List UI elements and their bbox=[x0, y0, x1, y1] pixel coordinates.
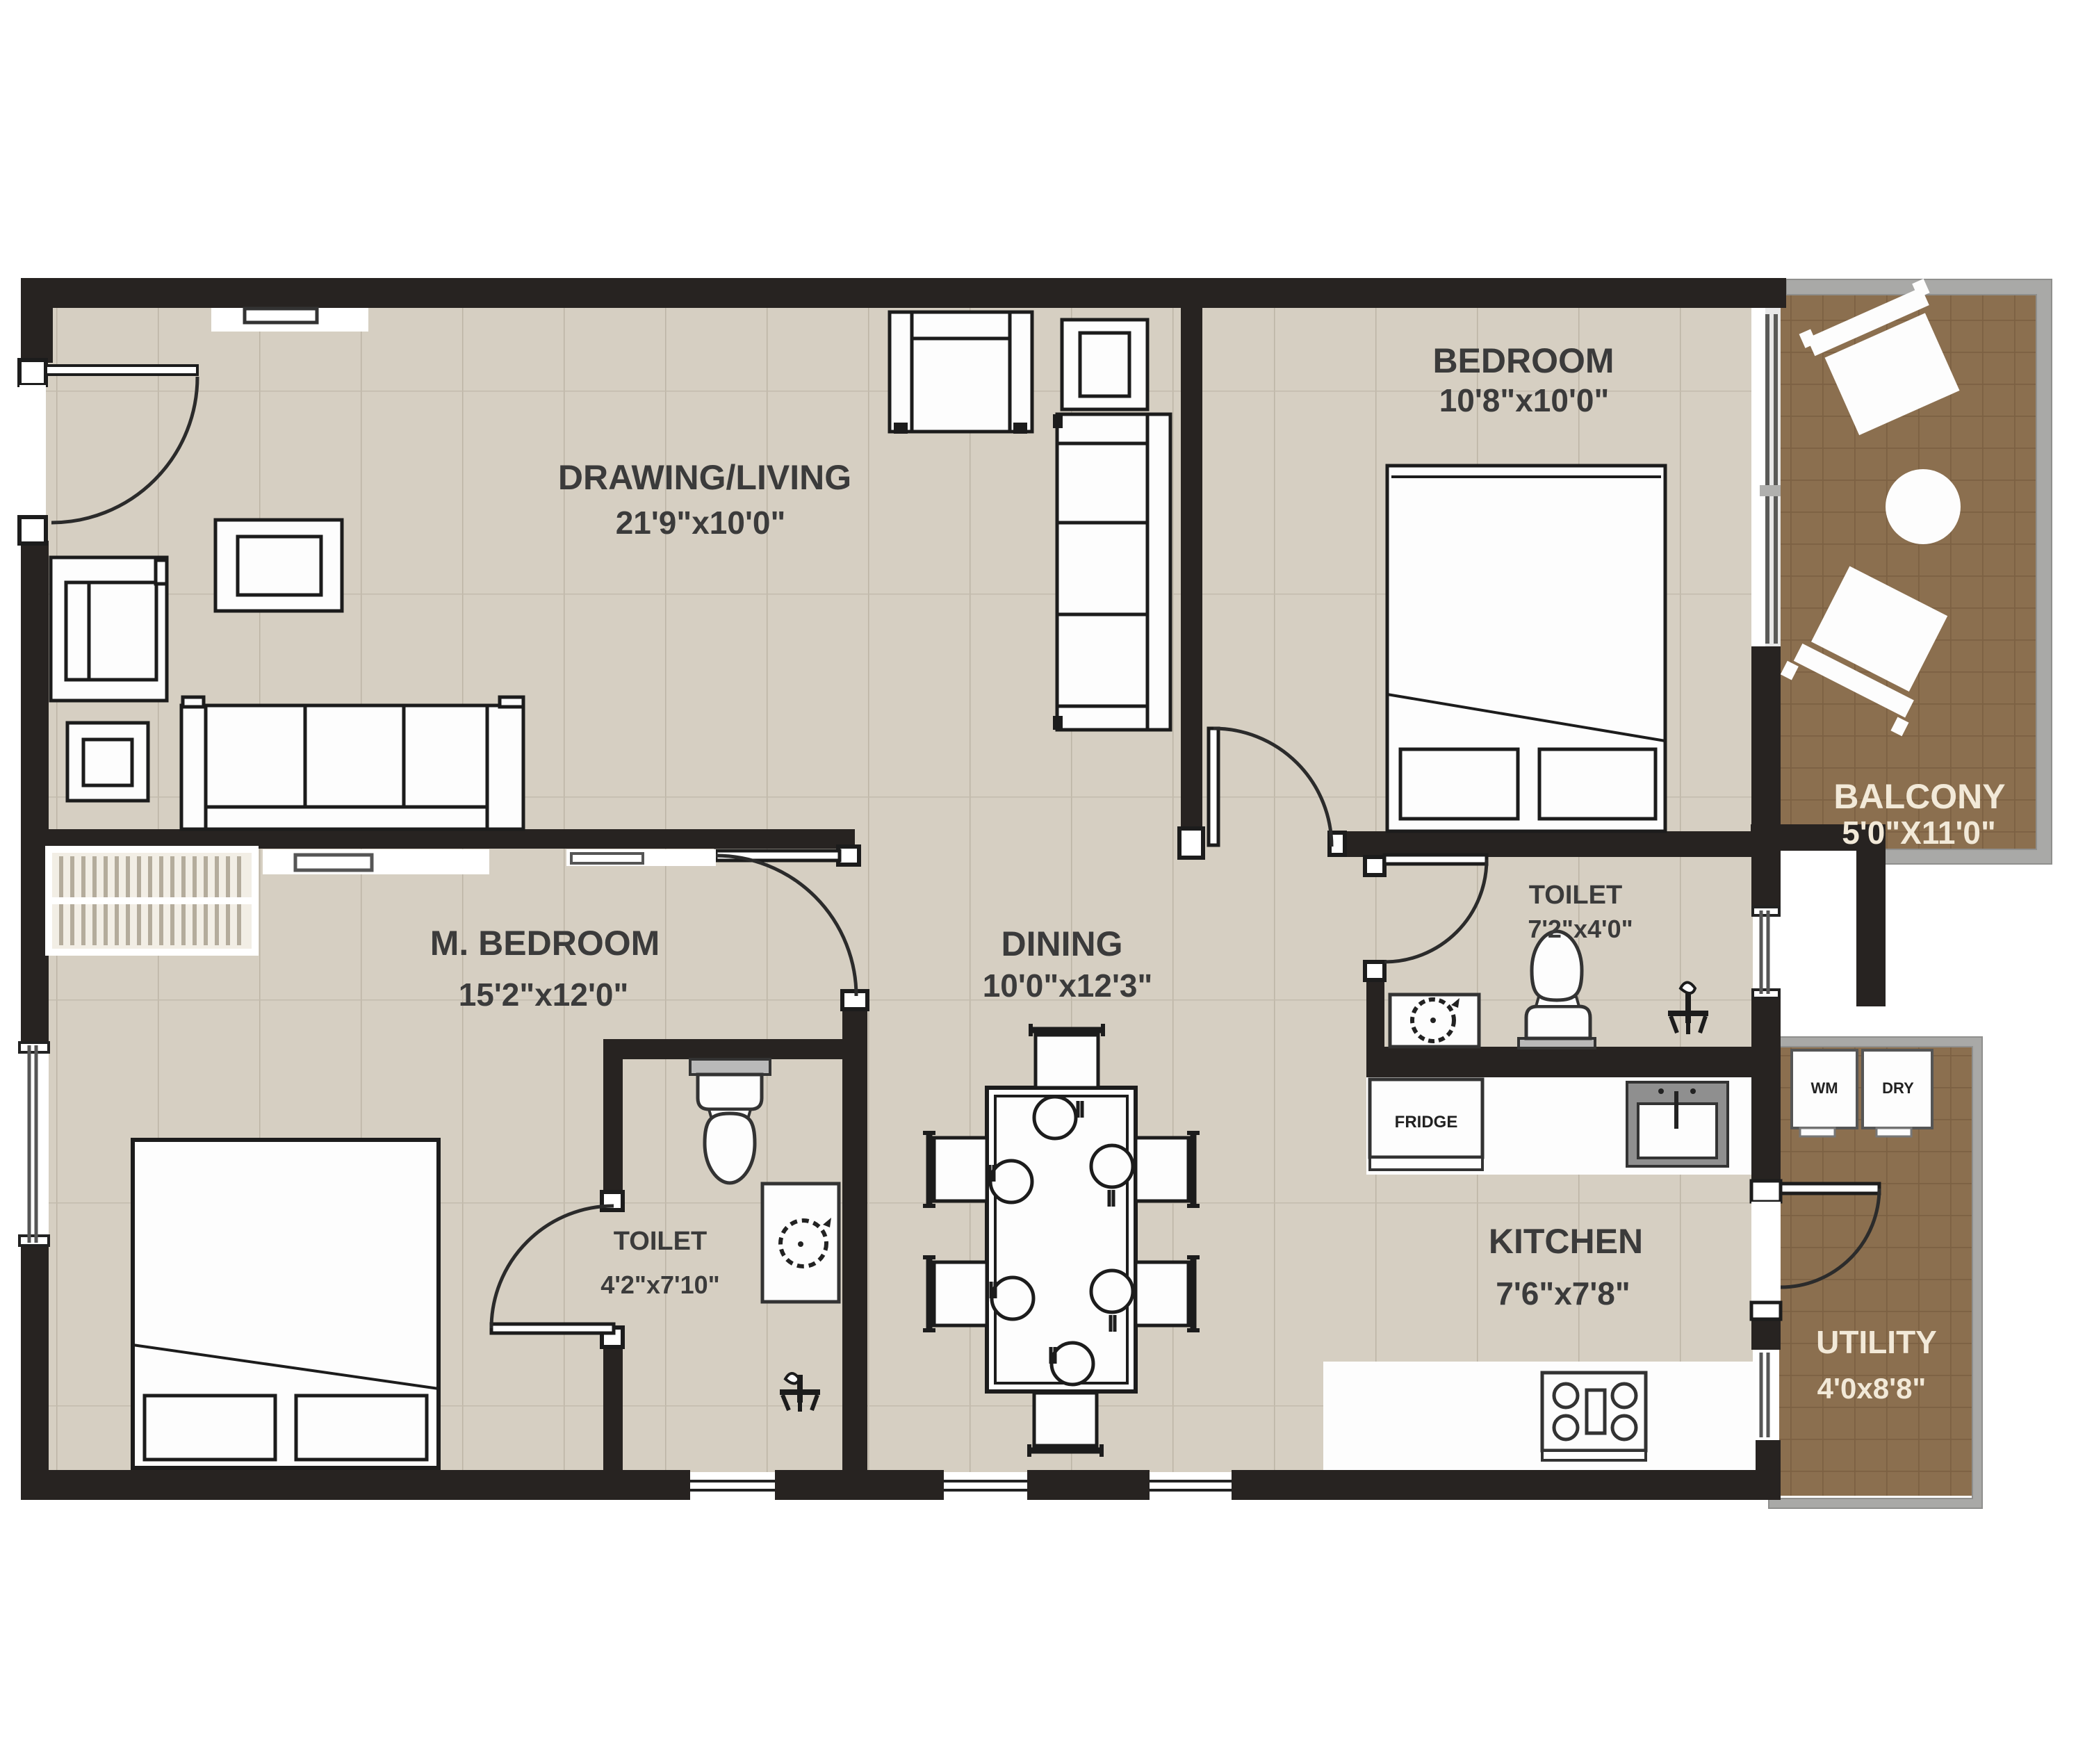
svg-text:7'6"x7'8": 7'6"x7'8" bbox=[1496, 1275, 1630, 1312]
svg-text:21'9"x10'0": 21'9"x10'0" bbox=[616, 505, 786, 541]
svg-text:BALCONY: BALCONY bbox=[1833, 777, 2005, 816]
svg-text:BEDROOM: BEDROOM bbox=[1432, 341, 1614, 380]
svg-text:10'8"x10'0": 10'8"x10'0" bbox=[1439, 382, 1610, 418]
svg-text:TOILET: TOILET bbox=[614, 1227, 707, 1256]
svg-text:WM: WM bbox=[1810, 1079, 1838, 1097]
svg-text:10'0"x12'3": 10'0"x12'3" bbox=[983, 967, 1153, 1004]
svg-text:DINING: DINING bbox=[1001, 924, 1123, 963]
svg-text:7'2"x4'0": 7'2"x4'0" bbox=[1528, 915, 1633, 943]
svg-text:15'2"x12'0": 15'2"x12'0" bbox=[459, 977, 629, 1013]
svg-text:TOILET: TOILET bbox=[1529, 881, 1622, 910]
svg-text:DRY: DRY bbox=[1882, 1079, 1914, 1097]
svg-text:DRAWING/LIVING: DRAWING/LIVING bbox=[558, 458, 851, 497]
svg-text:KITCHEN: KITCHEN bbox=[1489, 1222, 1643, 1261]
svg-text:4'0x8'8": 4'0x8'8" bbox=[1817, 1372, 1927, 1405]
svg-text:4'2"x7'10": 4'2"x7'10" bbox=[600, 1271, 719, 1299]
svg-text:FRIDGE: FRIDGE bbox=[1395, 1113, 1458, 1132]
svg-text:M. BEDROOM: M. BEDROOM bbox=[430, 924, 660, 963]
svg-text:5'0"X11'0": 5'0"X11'0" bbox=[1842, 815, 1996, 851]
svg-text:UTILITY: UTILITY bbox=[1816, 1324, 1937, 1360]
